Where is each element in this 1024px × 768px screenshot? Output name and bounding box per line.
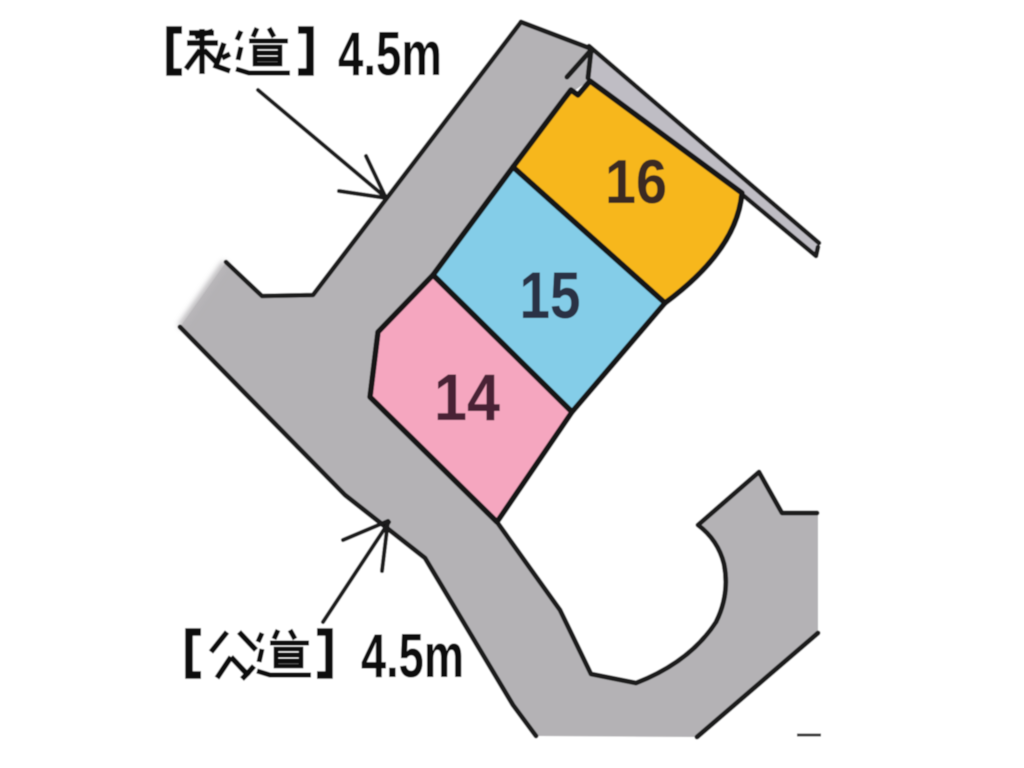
svg-text:14: 14 [434,360,500,434]
svg-text:4.5m: 4.5m [361,622,464,691]
svg-text:16: 16 [605,148,667,217]
svg-text:15: 15 [520,258,581,332]
svg-text:4.5m: 4.5m [338,20,442,89]
